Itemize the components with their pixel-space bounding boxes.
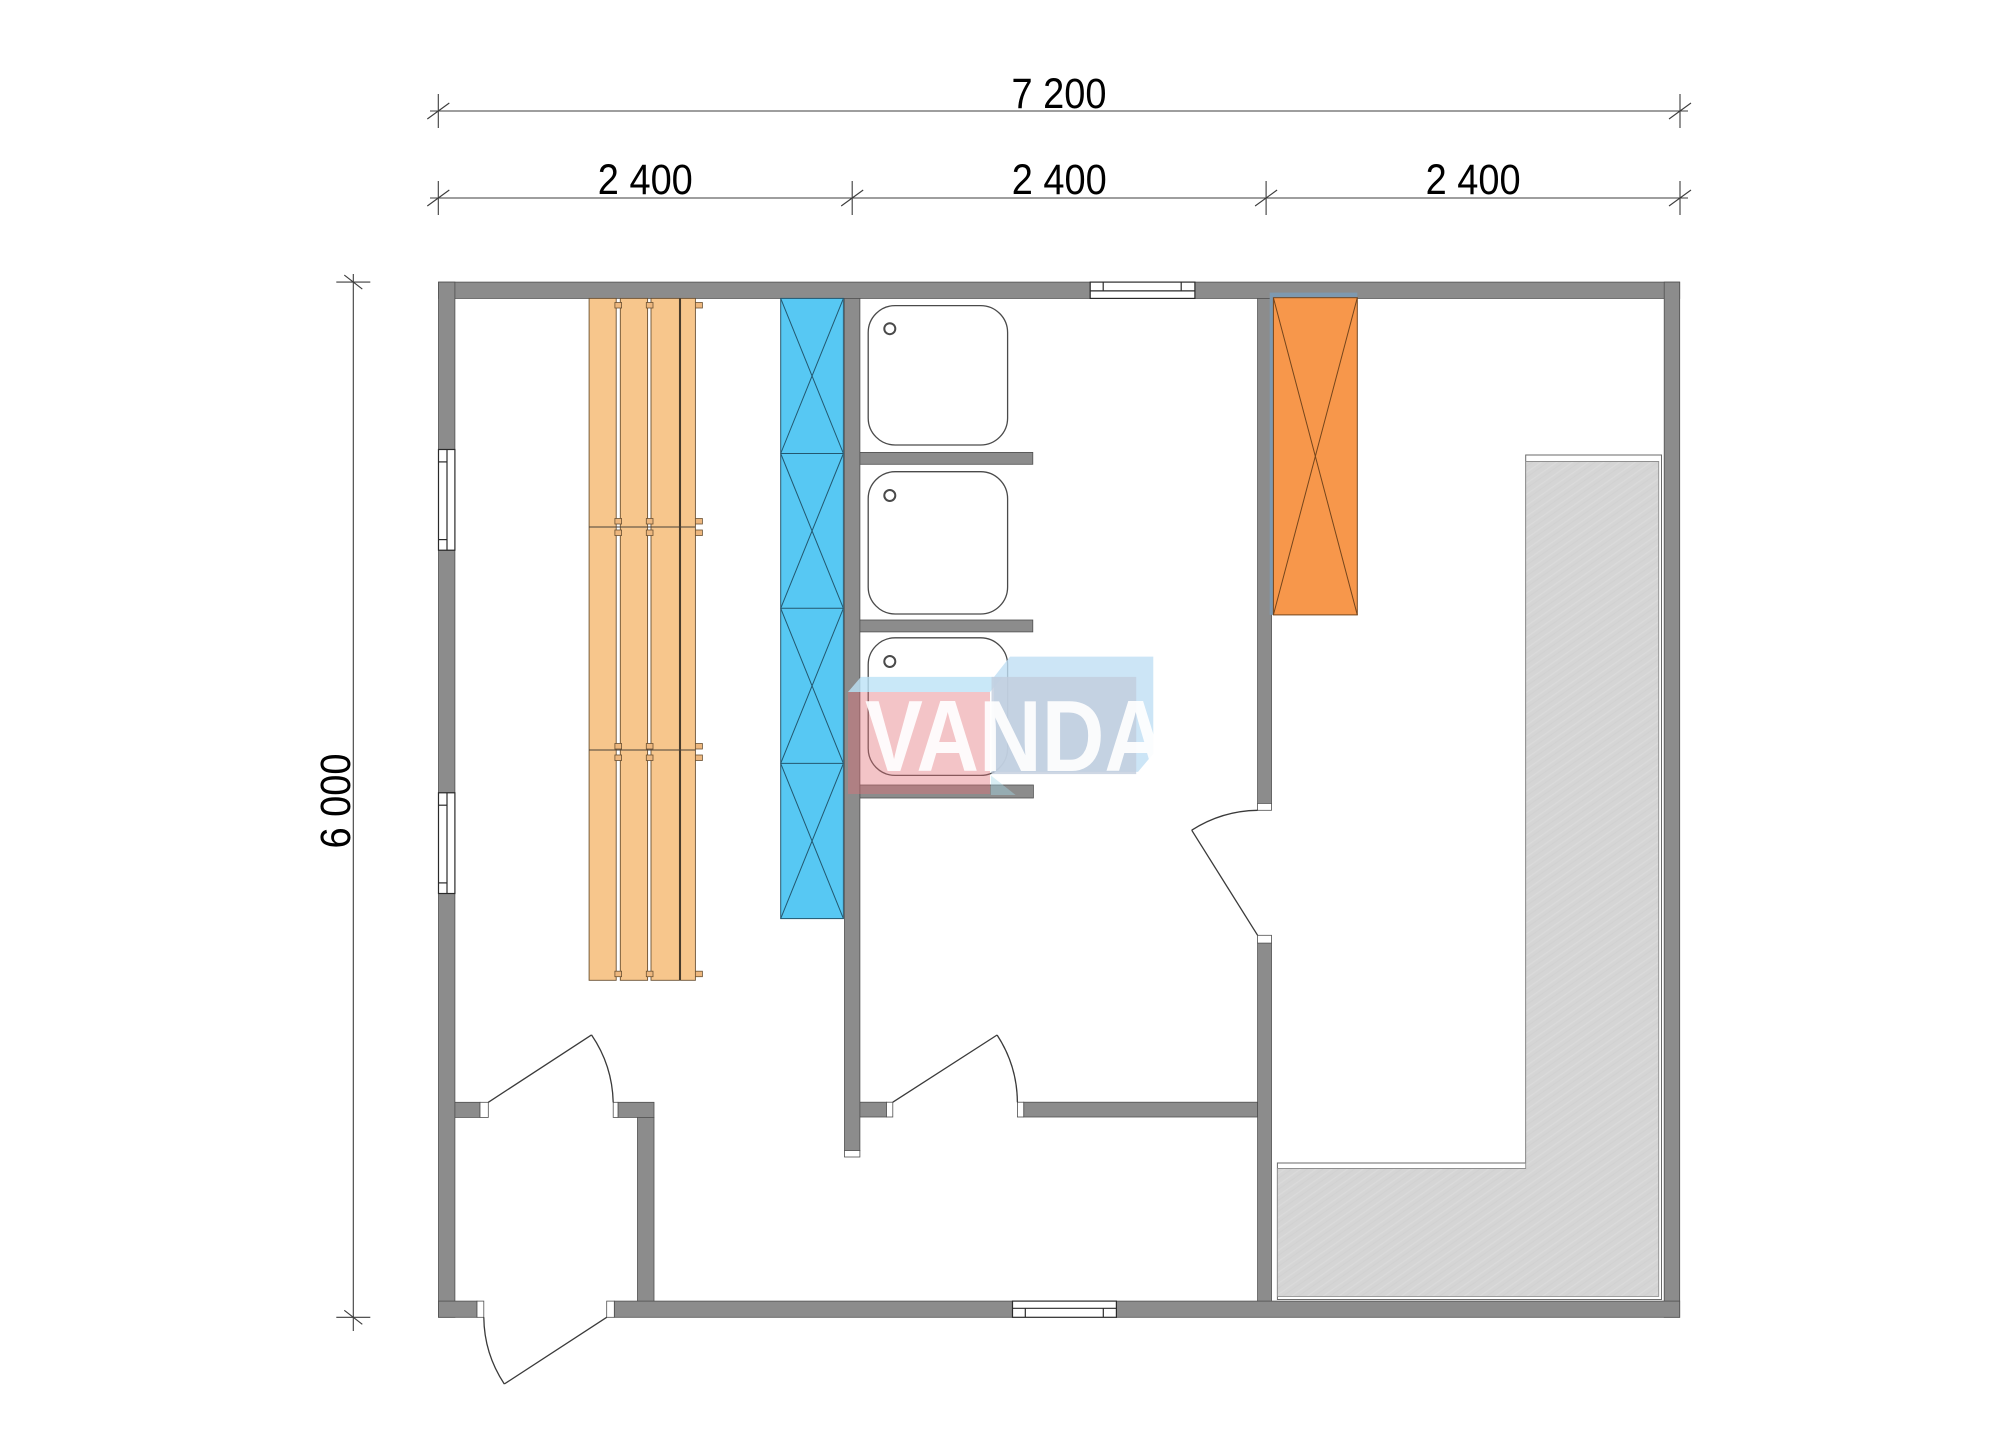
svg-text:2 400: 2 400 — [1012, 156, 1107, 204]
svg-text:VANDA: VANDA — [865, 681, 1167, 793]
svg-text:7 200: 7 200 — [1012, 70, 1107, 118]
svg-text:2 400: 2 400 — [598, 156, 693, 204]
svg-text:2 400: 2 400 — [1426, 156, 1521, 204]
svg-text:6 000: 6 000 — [312, 754, 360, 849]
